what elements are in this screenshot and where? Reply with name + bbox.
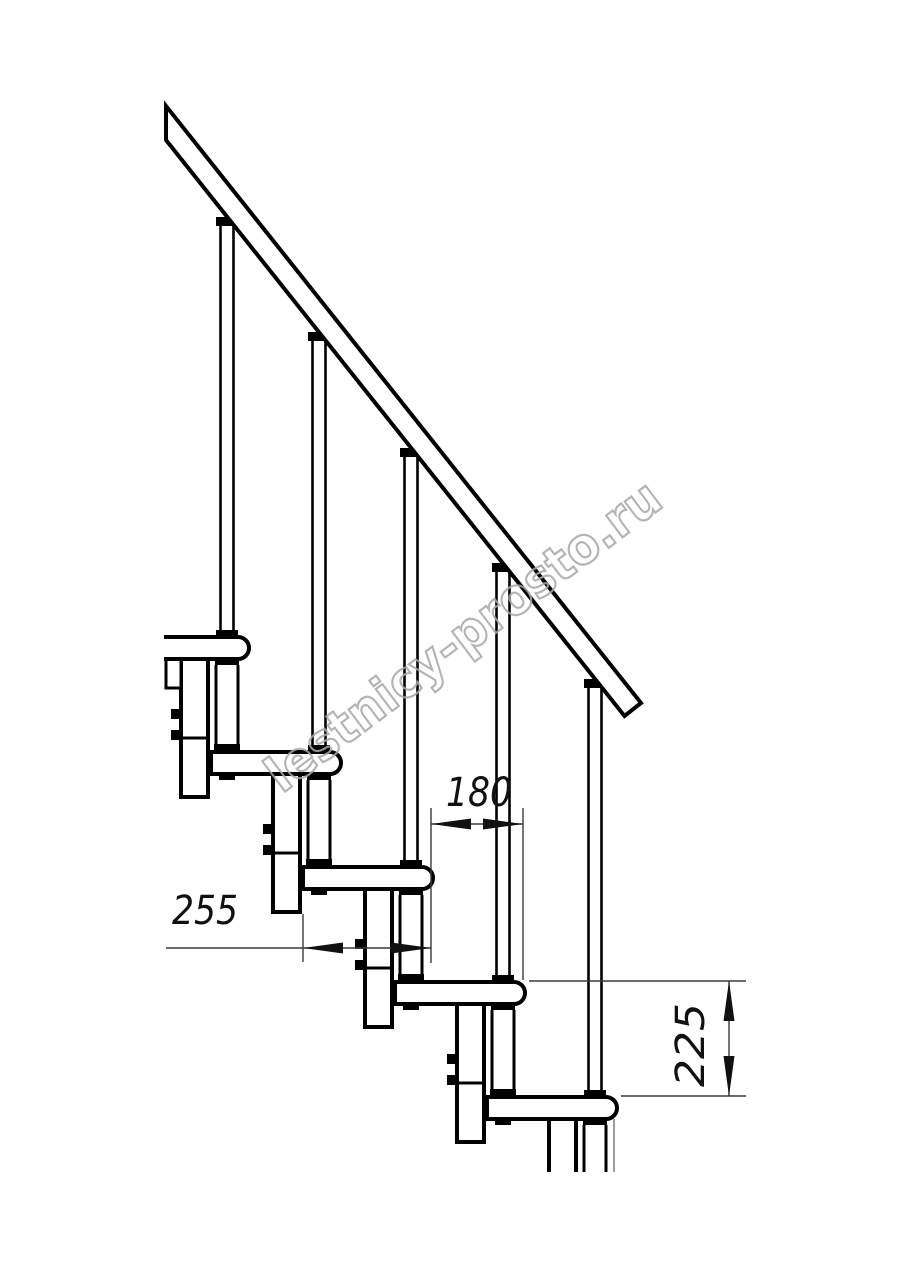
baluster-base-collar <box>492 975 514 982</box>
support-post <box>216 665 238 744</box>
module-column <box>549 1119 576 1172</box>
bolt-icon <box>171 709 181 719</box>
tread <box>487 1097 617 1119</box>
arrow-right-icon <box>483 819 523 830</box>
watermark-text: lestnicy-prosto.ru <box>254 468 672 803</box>
dim-label-180: 180 <box>446 770 512 816</box>
baluster-base-collar <box>400 860 422 867</box>
bolt-icon <box>447 1075 457 1085</box>
support-post <box>400 895 422 974</box>
tread <box>164 637 249 659</box>
dim-label-225: 225 <box>668 1003 714 1087</box>
baluster-base-collar <box>584 1090 606 1097</box>
arrow-right-icon <box>391 943 431 954</box>
dim-label-255: 255 <box>172 888 238 934</box>
arrow-left-icon <box>431 819 471 830</box>
baluster <box>221 226 234 630</box>
dimension-rise-225: 225 <box>529 981 746 1096</box>
module-flange <box>166 659 181 688</box>
arrow-up-icon <box>724 981 735 1021</box>
support-post <box>308 780 330 859</box>
bolt-icon <box>263 845 273 855</box>
bolt-icon <box>263 824 273 834</box>
stair-technical-drawing: 180 255 225 lestnicy-prosto.ru <box>0 0 914 1280</box>
baluster <box>313 341 326 745</box>
tread <box>395 982 525 1004</box>
module-column <box>457 1004 484 1142</box>
bolt-icon <box>171 730 181 740</box>
bolt-icon <box>355 960 365 970</box>
tread <box>303 867 433 889</box>
arrow-down-icon <box>724 1056 735 1096</box>
support-post <box>584 1125 606 1172</box>
module-column <box>181 659 208 797</box>
baluster <box>589 688 602 1090</box>
bolt-icon <box>447 1054 457 1064</box>
support-post <box>492 1010 514 1089</box>
module-column <box>365 889 392 1027</box>
baluster-base-collar <box>216 630 238 637</box>
arrow-left-icon <box>303 943 343 954</box>
